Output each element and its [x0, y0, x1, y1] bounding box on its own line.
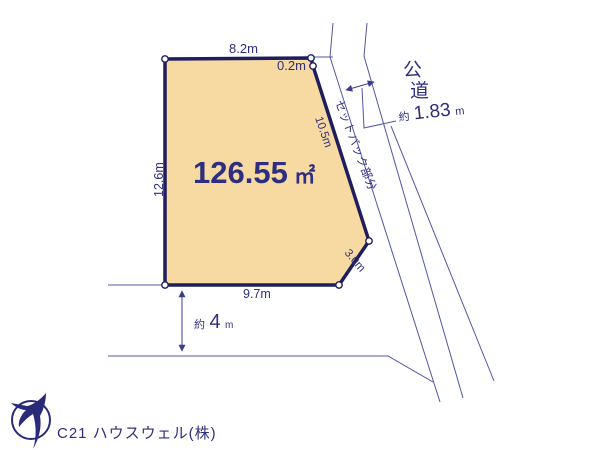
dim-top-edge: 8.2m: [229, 41, 258, 56]
road-width-unit: m: [455, 105, 465, 118]
road-width-arrow: [346, 82, 374, 90]
front-road-value: 4: [209, 311, 220, 333]
vertex-marker: [162, 282, 168, 288]
road-width-value: 1.83: [413, 100, 452, 125]
road-width-label: 約 1.83 m: [397, 98, 465, 126]
vertex-marker: [162, 56, 168, 62]
diagram-canvas: 126.55 ㎡ 8.2m 0.2m 12.6m 9.7m 10.5m 3.0m…: [0, 0, 600, 450]
road-width-prefix: 約: [398, 109, 410, 124]
area-value: 126.55: [193, 155, 288, 190]
vertex-marker: [308, 55, 314, 61]
company-name-label: C21 ハウスウェル(株): [57, 425, 217, 442]
area-unit: ㎡: [294, 164, 315, 188]
vertex-marker: [336, 282, 342, 288]
public-road-char-2: 道: [410, 80, 429, 102]
public-road-char-1: 公: [403, 60, 422, 81]
land-plot-diagram: 126.55 ㎡ 8.2m 0.2m 12.6m 9.7m 10.5m 3.0m…: [0, 0, 600, 450]
vertex-marker: [310, 63, 316, 69]
dim-left-edge: 12.6m: [152, 162, 166, 197]
dim-top-jog: 0.2m: [277, 58, 306, 73]
dim-bottom-edge: 9.7m: [243, 287, 271, 301]
public-road-label: 公 道: [403, 60, 429, 102]
front-road-unit: m: [225, 320, 233, 331]
front-road-prefix: 約: [194, 317, 205, 331]
far-boundary-line: [391, 126, 494, 381]
company-logo: [11, 393, 50, 449]
front-road-lower-line: [108, 356, 433, 382]
front-road-width-label: 約 4 m: [194, 311, 233, 333]
vertex-marker: [366, 238, 372, 244]
